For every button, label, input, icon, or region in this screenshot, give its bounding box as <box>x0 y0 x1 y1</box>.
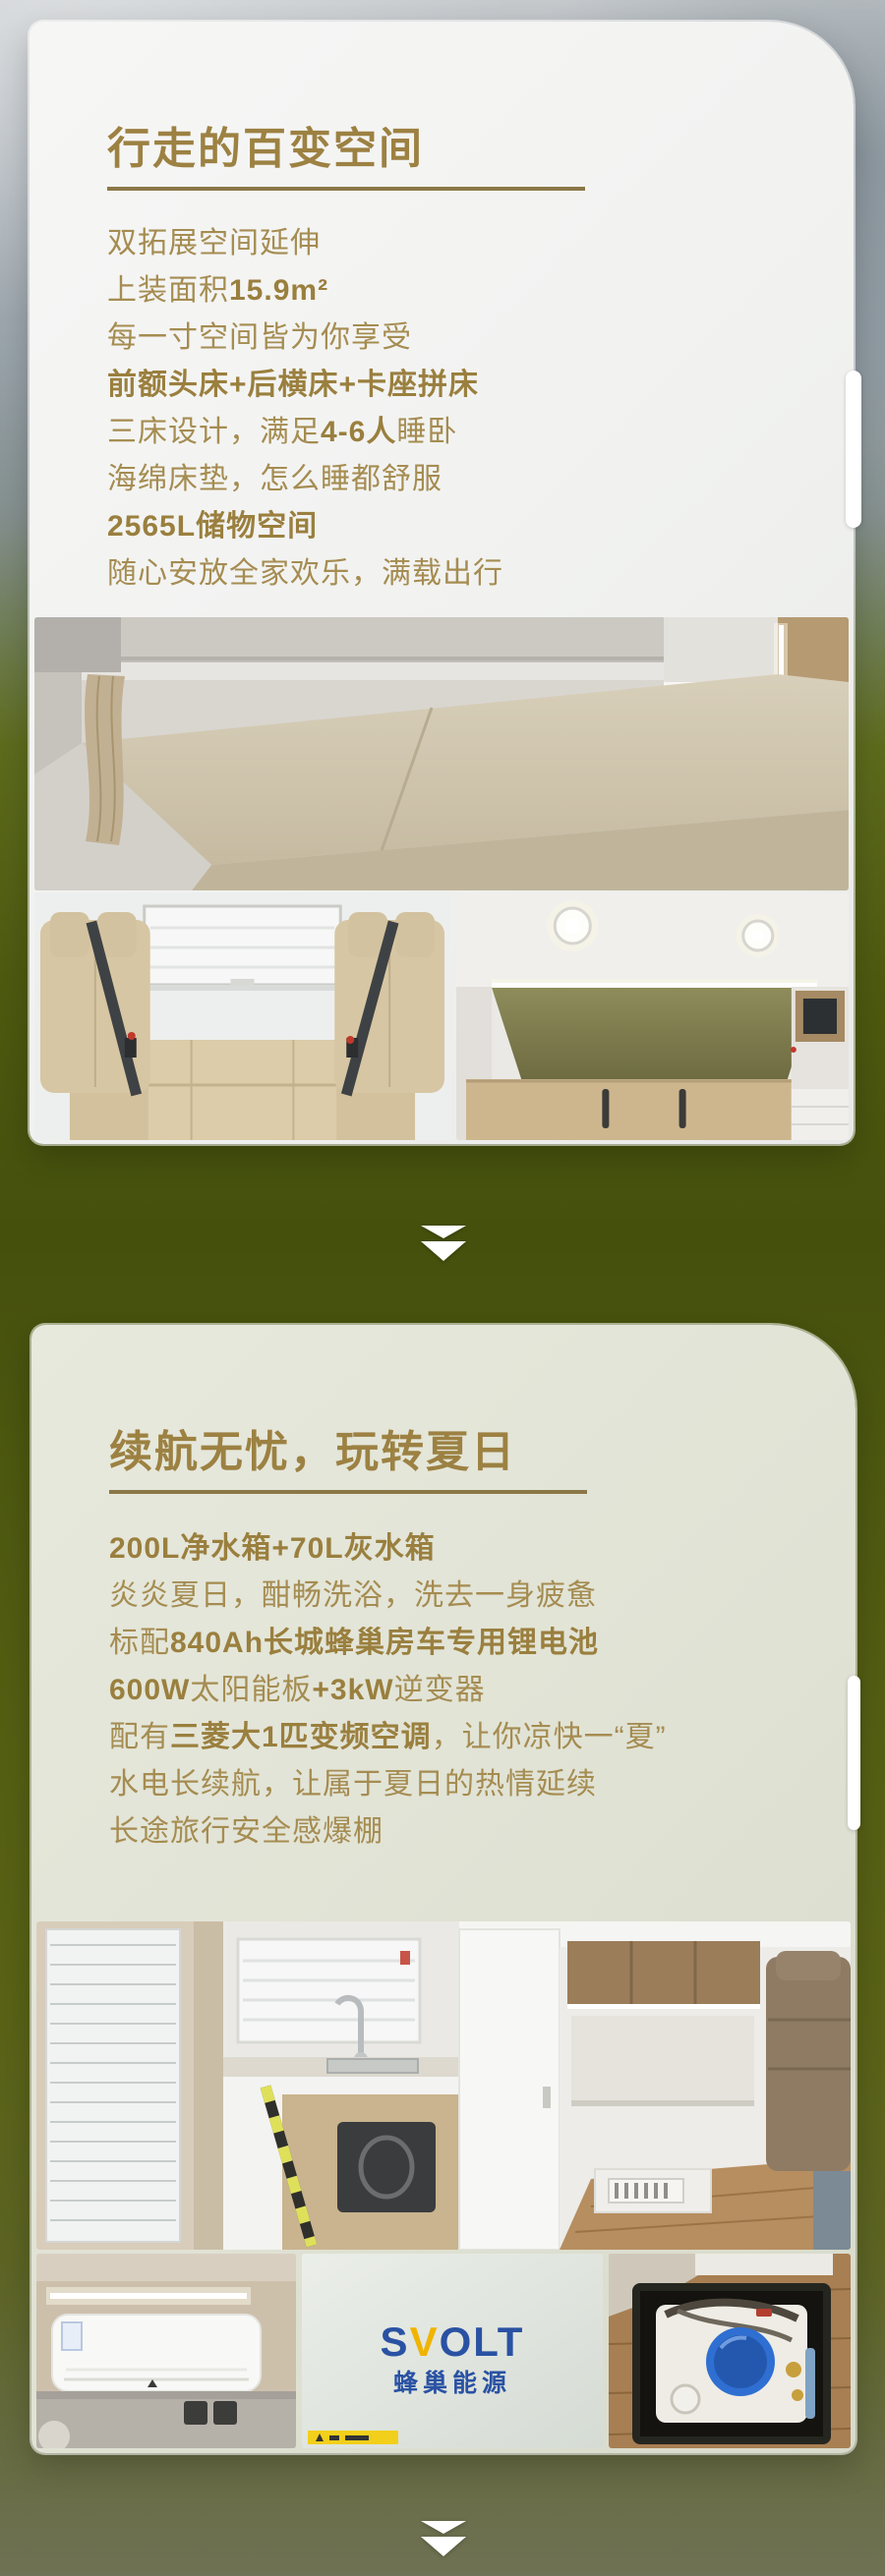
text-segment: 配有 <box>109 1721 170 1753</box>
water-tank-photo <box>609 2254 851 2448</box>
text-segment: 太阳能板 <box>190 1674 312 1706</box>
text-segment: 三床设计，满足 <box>107 416 321 448</box>
text-line: 600W太阳能板+3kW逆变器 <box>109 1667 667 1714</box>
text-segment: 200L净水箱+70L灰水箱 <box>109 1532 436 1565</box>
text-line: 随心安放全家欢乐，满载出行 <box>107 550 503 598</box>
text-line: 长途旅行安全感爆棚 <box>109 1808 667 1856</box>
text-segment: 上装面积 <box>107 274 229 307</box>
text-line: 前额头床+后横床+卡座拼床 <box>107 362 503 409</box>
card-text-lines: 双拓展空间延伸上装面积15.9m²每一寸空间皆为你享受前额头床+后横床+卡座拼床… <box>107 220 503 598</box>
kitchen-photo <box>36 1921 851 2250</box>
promo-page-background: 行走的百变空间 双拓展空间延伸上装面积15.9m²每一寸空间皆为你享受前额头床+… <box>0 0 885 2576</box>
text-segment: ，让你凉快一“夏” <box>432 1721 667 1753</box>
text-segment: 2565L储物空间 <box>107 510 318 543</box>
text-segment: 睡卧 <box>396 416 457 448</box>
text-segment: 双拓展空间延伸 <box>107 227 321 259</box>
text-segment: 随心安放全家欢乐，满载出行 <box>107 557 503 590</box>
text-segment: 逆变器 <box>394 1674 486 1706</box>
text-line: 三床设计，满足4-6人睡卧 <box>107 409 503 456</box>
arrow-triangle-bottom <box>421 1241 466 1261</box>
text-segment: 炎炎夏日，酣畅洗浴，洗去一身疲惫 <box>109 1579 597 1612</box>
title-underline <box>109 1490 587 1494</box>
text-line: 200L净水箱+70L灰水箱 <box>109 1525 667 1573</box>
arrow-triangle-bottom <box>421 2537 466 2556</box>
text-line: 水电长续航，让属于夏日的热情延续 <box>109 1761 667 1808</box>
text-segment: 4-6人 <box>321 416 396 448</box>
text-segment: 长途旅行安全感爆棚 <box>109 1815 383 1848</box>
scroll-thumb[interactable] <box>848 1676 860 1830</box>
text-segment: 840Ah长城蜂巢房车专用锂电池 <box>170 1627 599 1659</box>
bed-photo <box>34 617 849 890</box>
text-segment: 海绵床垫，怎么睡都舒服 <box>107 463 442 495</box>
text-segment: 标配 <box>109 1627 170 1659</box>
text-segment: 每一寸空间皆为你享受 <box>107 321 412 354</box>
text-segment: 前额头床+后横床+卡座拼床 <box>107 369 479 401</box>
text-line: 每一寸空间皆为你享受 <box>107 315 503 362</box>
scroll-down-icon <box>421 1226 466 1261</box>
text-line: 标配840Ah长城蜂巢房车专用锂电池 <box>109 1620 667 1667</box>
arrow-triangle-top <box>421 1226 466 1238</box>
text-line: 炎炎夏日，酣畅洗浴，洗去一身疲惫 <box>109 1573 667 1620</box>
card-living-space: 行走的百变空间 双拓展空间延伸上装面积15.9m²每一寸空间皆为你享受前额头床+… <box>29 22 854 1144</box>
card-text-lines: 200L净水箱+70L灰水箱炎炎夏日，酣畅洗浴，洗去一身疲惫标配840Ah长城蜂… <box>109 1525 667 1856</box>
card-title: 行走的百变空间 <box>107 126 424 173</box>
scroll-down-icon <box>421 2521 466 2556</box>
svolt-logo-text: SVOLT <box>381 2318 525 2365</box>
card-title: 续航无忧，玩转夏日 <box>109 1429 516 1476</box>
text-line: 海绵床垫，怎么睡都舒服 <box>107 456 503 503</box>
text-segment: 三菱大1匹变频空调 <box>170 1721 432 1753</box>
text-segment: +3kW <box>312 1674 393 1706</box>
title-underline <box>107 187 585 191</box>
scroll-thumb[interactable] <box>846 371 861 528</box>
dinette-seats-photo <box>34 892 450 1140</box>
svolt-battery-photo: SVOLT 蜂巢能源 <box>302 2254 603 2448</box>
svolt-cn-text: 蜂巢能源 <box>393 2369 511 2397</box>
text-segment: 15.9m² <box>229 274 328 307</box>
text-segment: 600W <box>109 1674 190 1706</box>
text-line: 配有三菱大1匹变频空调，让你凉快一“夏” <box>109 1714 667 1761</box>
text-line: 双拓展空间延伸 <box>107 220 503 267</box>
text-line: 2565L储物空间 <box>107 503 503 550</box>
garage-storage-photo <box>456 892 849 1140</box>
card-power-endurance: 续航无忧，玩转夏日 200L净水箱+70L灰水箱炎炎夏日，酣畅洗浴，洗去一身疲惫… <box>31 1325 855 2453</box>
text-segment: 水电长续航，让属于夏日的热情延续 <box>109 1768 597 1801</box>
air-conditioner-photo <box>36 2254 296 2448</box>
arrow-triangle-top <box>421 2521 466 2534</box>
text-line: 上装面积15.9m² <box>107 267 503 315</box>
